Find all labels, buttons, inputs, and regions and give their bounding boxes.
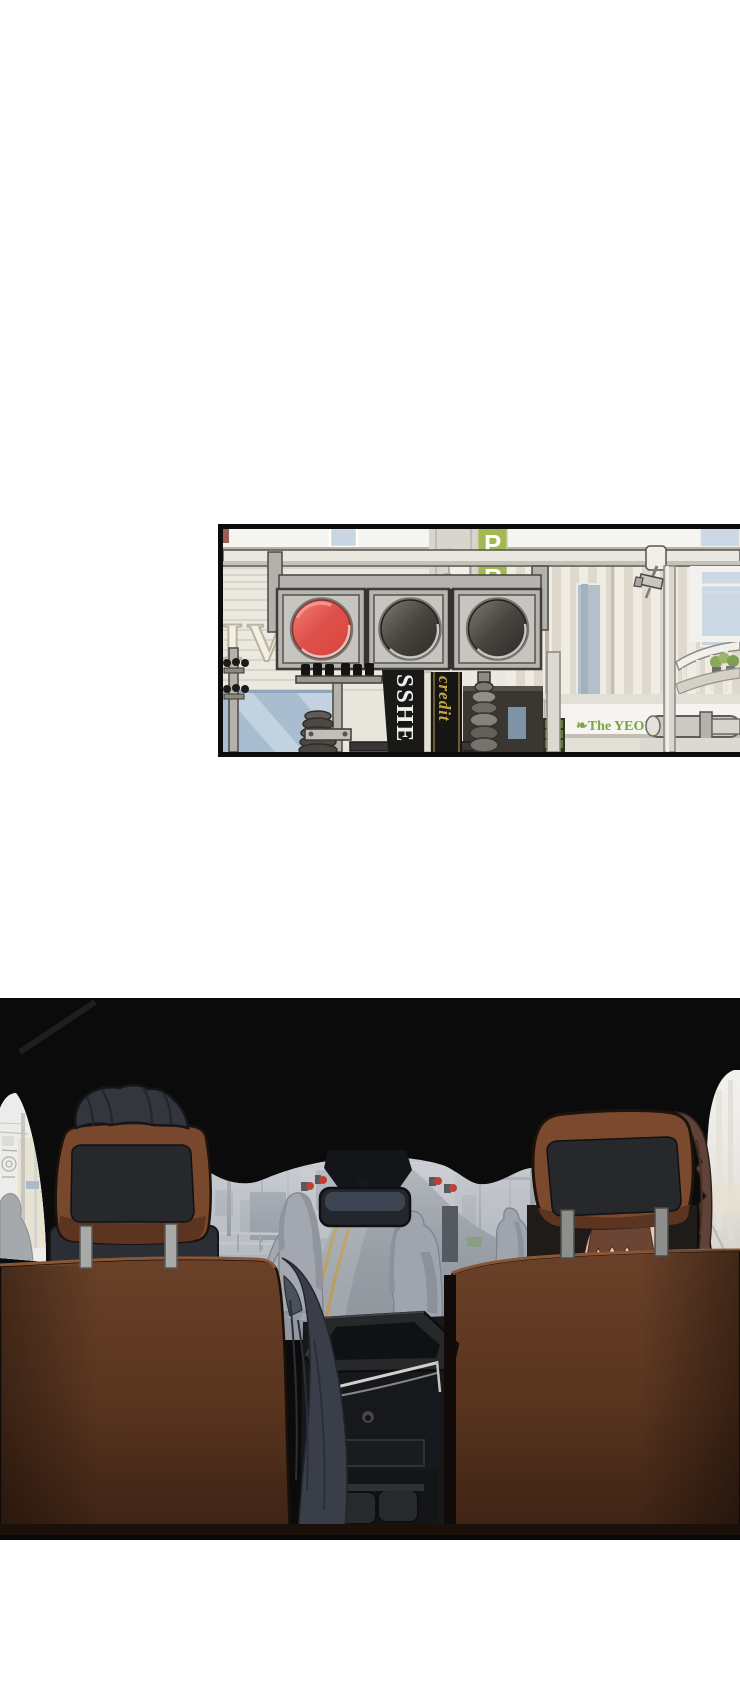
svg-text:SSHE: SSHE: [391, 674, 417, 743]
svg-text:credit: credit: [435, 676, 454, 722]
